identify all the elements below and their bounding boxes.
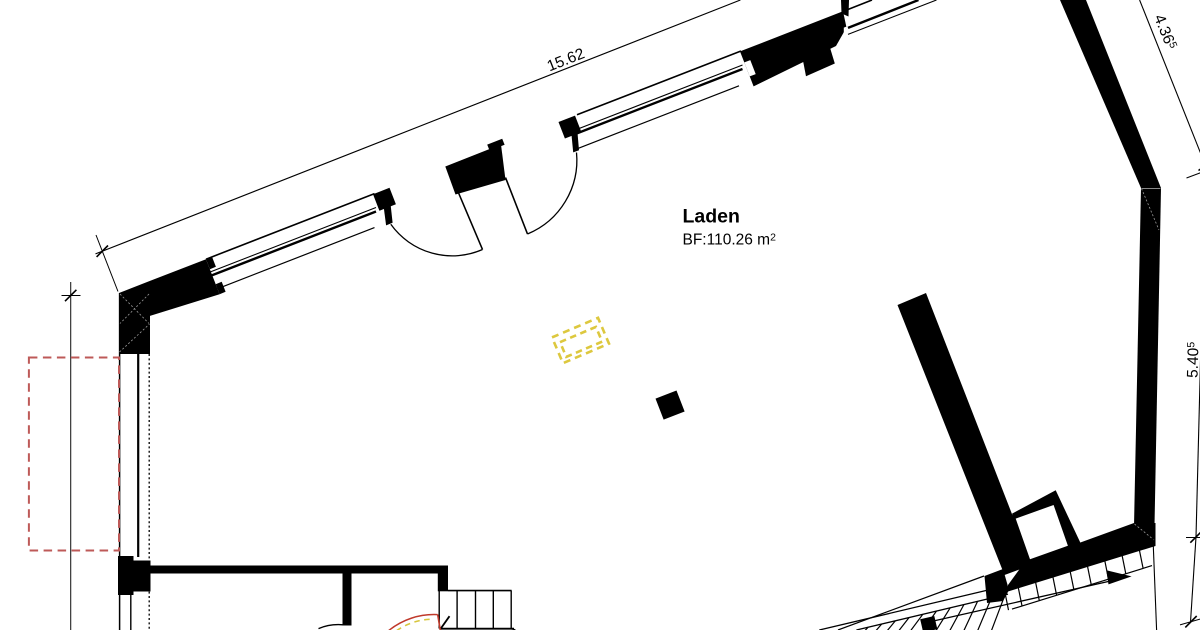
svg-text:BF:110.26 m2: BF:110.26 m2 [683, 232, 777, 249]
svg-text:Laden: Laden [683, 206, 740, 228]
